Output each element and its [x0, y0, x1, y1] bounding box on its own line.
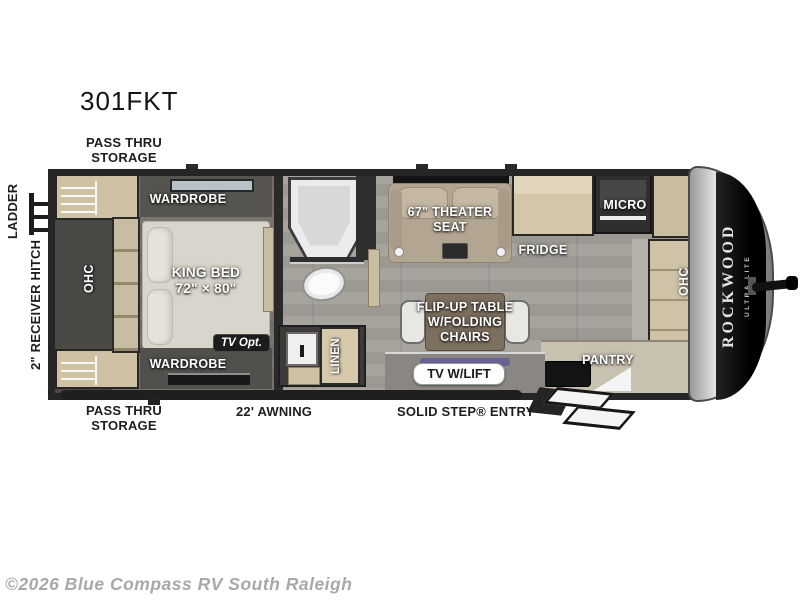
pass-thru-storage-top-label: PASS THRU STORAGE [74, 135, 174, 166]
flip-table-line2: W/FOLDING [409, 315, 521, 330]
shower-door [290, 257, 364, 264]
sliding-door [368, 249, 380, 307]
tv-optional-badge: TV Opt. [213, 334, 270, 352]
cupholder [496, 247, 506, 257]
pillow [147, 289, 173, 345]
tongue-jack-knob [786, 276, 798, 290]
vanity-cabinet [288, 367, 320, 385]
skylight [170, 179, 254, 192]
ohc-bedroom-label: OHC [82, 253, 98, 305]
fridge-top [514, 176, 592, 194]
toilet [299, 263, 349, 305]
fridge [512, 174, 594, 236]
entry-label: SOLID STEP® ENTRY [397, 404, 534, 419]
wall-top [48, 169, 700, 176]
king-bed-line1: KING BED [148, 265, 264, 281]
step-tread [562, 405, 636, 429]
shelf-lines [61, 356, 97, 385]
pass-thru-storage-bottom-label: PASS THRU STORAGE [74, 403, 174, 434]
king-bed-line2: 72" × 80" [148, 281, 264, 297]
king-bed-label: KING BED 72" × 80" [148, 265, 264, 297]
fridge-label: FRIDGE [508, 243, 578, 258]
bathroom-wall [356, 176, 376, 260]
floorplan-title: 301FKT [80, 86, 179, 117]
entry-step [530, 385, 639, 448]
pantry-label: PANTRY [553, 353, 663, 368]
dealer-watermark: ©2026 Blue Compass RV South Raleigh [5, 574, 352, 595]
shelf-lines [61, 181, 97, 215]
floorplan-canvas: 301FKT PASS THRU STORAGE LADDER 2" RECEI… [0, 0, 800, 600]
receiver-hitch-label: 2" RECEIVER HITCH [28, 236, 44, 374]
pass-thru-cabinet-bottom [55, 349, 139, 389]
theater-seat-line2: SEAT [400, 220, 500, 235]
awning-label: 22' AWNING [236, 404, 312, 419]
linen-label: LINEN [330, 332, 346, 380]
theater-seat-line1: 67" THEATER [400, 205, 500, 220]
sliding-door [263, 227, 274, 312]
ladder-label: LADDER [5, 178, 21, 244]
faucet [300, 345, 304, 357]
tv-w-lift-label: TV W/LIFT [413, 363, 505, 385]
seat-console [442, 243, 468, 259]
microwave-handle [600, 216, 646, 220]
trailer-body: WARDROBE KING BED 72" × 80" OHC TV Opt. … [48, 169, 700, 400]
bedroom-tv [168, 373, 250, 385]
cupholder [394, 247, 404, 257]
flip-table-label: FLIP-UP TABLE W/FOLDING CHAIRS [409, 300, 521, 344]
rockwood-logo: ROCKWOOD [720, 198, 742, 374]
bedroom-ohc-cabinets [112, 217, 140, 353]
wall-rear [48, 169, 55, 400]
awning-bar [60, 390, 522, 400]
pass-thru-cabinet-top [55, 174, 139, 220]
shower [288, 177, 366, 265]
flip-table-line3: CHAIRS [409, 330, 521, 345]
micro-label: MICRO [594, 198, 656, 213]
wardrobe-top-label: WARDROBE [128, 192, 248, 207]
wardrobe-bottom-label: WARDROBE [128, 357, 248, 372]
flip-table-line1: FLIP-UP TABLE [409, 300, 521, 315]
theater-seat-label: 67" THEATER SEAT [400, 205, 500, 235]
